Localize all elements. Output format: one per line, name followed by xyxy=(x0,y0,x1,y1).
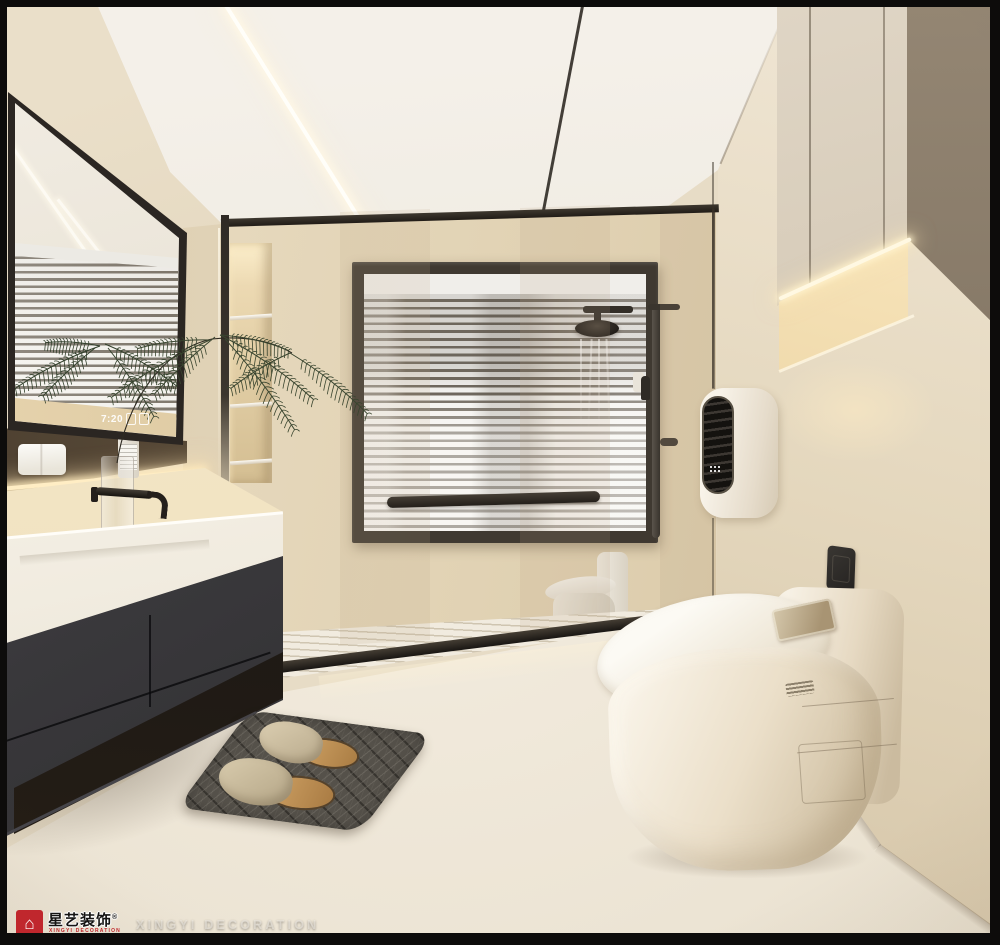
wall-base-shadow xyxy=(708,614,881,851)
basin-shadow xyxy=(20,539,210,566)
counter-edge-highlight xyxy=(0,511,283,539)
watermark: ⌂ 星艺装饰® XINGYI DECORATION XINGYI DECORAT… xyxy=(14,904,414,942)
potted-plant-branches xyxy=(60,295,360,460)
wet-room-toilet-tank xyxy=(597,552,628,614)
toilet-floor-shadow xyxy=(575,826,920,888)
slipper-toe xyxy=(215,753,295,810)
toilet-seam xyxy=(797,744,897,754)
logo-tm-mark: ® xyxy=(112,914,118,921)
glass-edge-lower xyxy=(712,518,714,616)
logo-cn-text: 星艺装饰 xyxy=(48,912,112,929)
house-glyph: ⌂ xyxy=(24,914,34,933)
blinds-valance xyxy=(364,274,646,294)
ceiling-led-strip xyxy=(223,3,376,244)
glass-partition-bottom-track xyxy=(278,606,722,673)
hand-shower[interactable] xyxy=(641,376,650,400)
mirror-reflected-led-strip xyxy=(9,143,114,291)
smart-toilet-lid xyxy=(588,577,838,726)
toilet-vent-grille xyxy=(785,680,815,697)
wet-room-toilet-seat xyxy=(544,573,617,604)
light-switch[interactable] xyxy=(826,545,855,593)
glass-edge-upper xyxy=(712,162,714,388)
slipper-insole xyxy=(264,773,337,813)
shower-diverter-knob[interactable] xyxy=(660,438,678,446)
toilet-access-panel xyxy=(798,740,866,804)
rain-shower-head[interactable] xyxy=(575,320,619,337)
cabinet-niche-bottom-lip xyxy=(779,314,915,372)
smart-toilet-body xyxy=(606,643,886,874)
wall-heater-louver[interactable] xyxy=(702,396,734,494)
shower-column[interactable] xyxy=(652,306,660,538)
partition-ceiling-track xyxy=(542,6,583,211)
switch-plate-inner xyxy=(832,555,851,584)
wall-base-shadow xyxy=(874,844,1000,939)
xingyi-house-logo-icon: ⌂ xyxy=(16,910,43,937)
toilet-flush-plate[interactable] xyxy=(771,598,836,642)
mirror-reflected-led-strip xyxy=(57,198,132,293)
folded-towel xyxy=(18,444,66,475)
glass-partition-right-edge xyxy=(712,209,715,389)
glass-partition-top-frame xyxy=(221,204,719,227)
watermark-brand-text: XINGYI DECORATION xyxy=(136,918,319,932)
toilet-seam xyxy=(802,698,894,707)
watermark-logo-sub: XINGYI DECORATION xyxy=(49,928,125,936)
bathroom-interior-render: 7:20 ⌂ 星艺装饰® XINGYI DECORATION XINGYI DE… xyxy=(0,0,1000,945)
watermark-logo-cn: 星艺装饰® xyxy=(48,909,118,930)
wall-faucet[interactable] xyxy=(96,487,153,499)
